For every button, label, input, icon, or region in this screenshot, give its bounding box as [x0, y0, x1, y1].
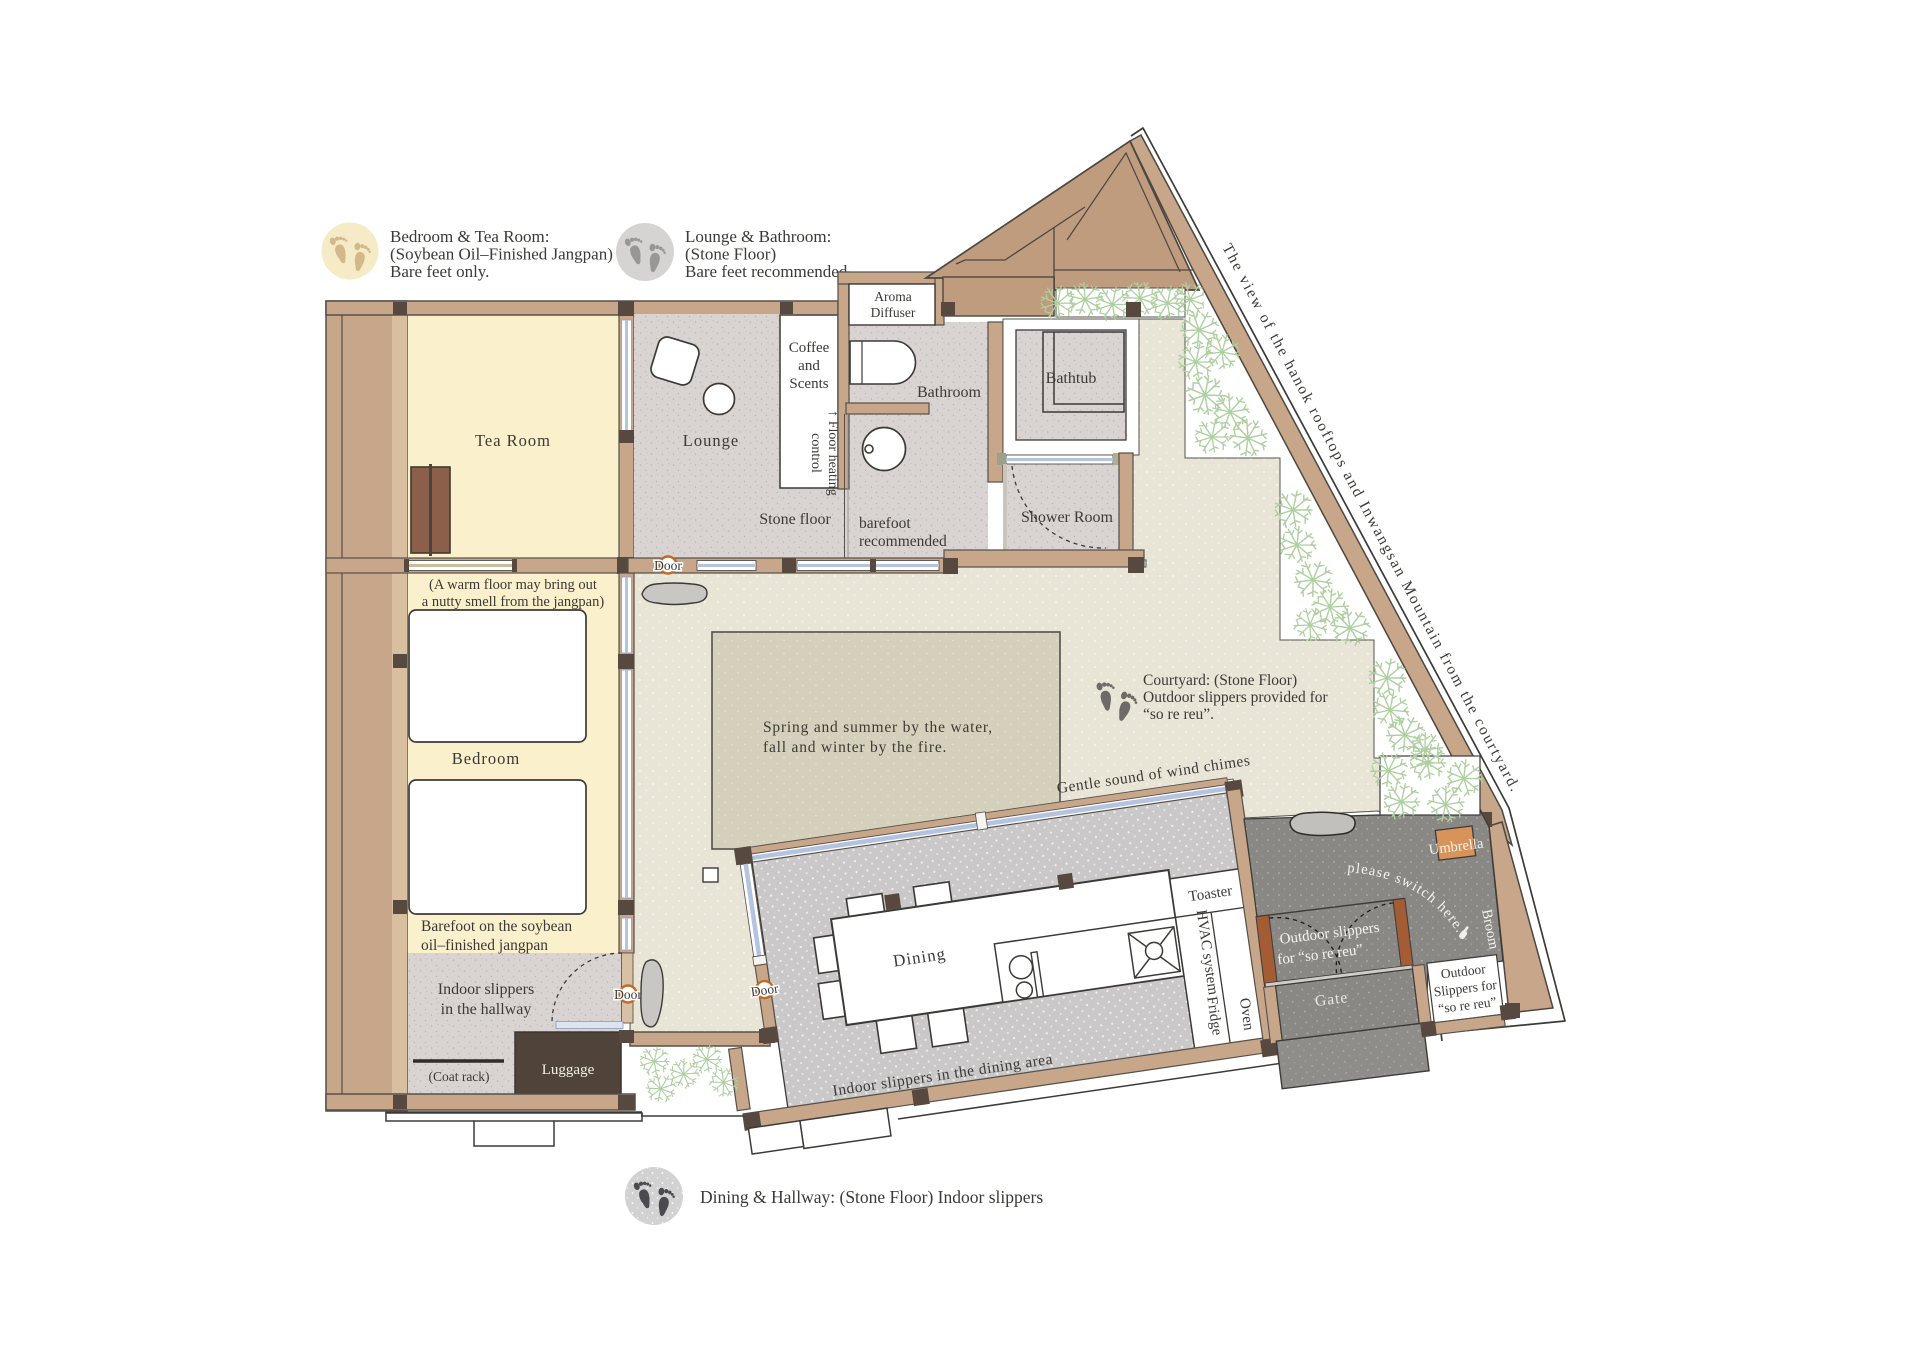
svg-text:Barefoot on the soybean: Barefoot on the soybean [421, 918, 572, 935]
svg-text:Tea Room: Tea Room [475, 431, 551, 450]
svg-text:and: and [798, 358, 820, 374]
svg-text:Bathroom: Bathroom [917, 384, 982, 401]
svg-text:Bare feet only.: Bare feet only. [390, 262, 489, 281]
svg-text:Stone floor: Stone floor [759, 511, 831, 528]
svg-text:Luggage: Luggage [542, 1062, 595, 1078]
svg-text:barefoot: barefoot [859, 515, 911, 532]
svg-text:oil–finished jangpan: oil–finished jangpan [421, 937, 548, 954]
svg-text:Lounge & Bathroom:: Lounge & Bathroom: [685, 227, 831, 246]
svg-text:Spring and summer by the water: Spring and summer by the water, [763, 719, 993, 736]
svg-text:Indoor slippers: Indoor slippers [438, 981, 534, 998]
svg-text:Door: Door [614, 987, 642, 1002]
svg-text:Diffuser: Diffuser [871, 305, 916, 320]
svg-text:Bathtub: Bathtub [1046, 370, 1097, 387]
svg-text:Door: Door [654, 558, 682, 573]
svg-text:Outdoor slippers provided for: Outdoor slippers provided for [1143, 689, 1329, 706]
svg-text:“so re reu”.: “so re reu”. [1143, 706, 1214, 723]
svg-text:Bare feet recommended.: Bare feet recommended. [685, 262, 852, 281]
svg-text:Bedroom: Bedroom [452, 749, 520, 768]
svg-text:Bedroom & Tea Room:: Bedroom & Tea Room: [390, 227, 550, 246]
svg-text:recommended: recommended [859, 533, 947, 550]
svg-text:Scents: Scents [789, 376, 828, 392]
svg-text:Coffee: Coffee [789, 340, 830, 356]
svg-text:Dining & Hallway: (Stone Floor: Dining & Hallway: (Stone Floor) Indoor s… [700, 1187, 1043, 1207]
svg-text:(Coat rack): (Coat rack) [428, 1069, 489, 1084]
svg-text:in the hallway: in the hallway [441, 1001, 532, 1018]
svg-text:Shower Room: Shower Room [1021, 509, 1114, 526]
svg-text:Aroma: Aroma [874, 289, 912, 304]
svg-text:(Soybean Oil–Finished Jangpan): (Soybean Oil–Finished Jangpan) [390, 245, 613, 264]
svg-text:Lounge: Lounge [683, 431, 739, 450]
svg-text:Courtyard: (Stone Floor): Courtyard: (Stone Floor) [1143, 672, 1297, 689]
svg-text:a nutty smell from the jangpan: a nutty smell from the jangpan) [422, 594, 605, 610]
svg-text:(Stone Floor): (Stone Floor) [685, 245, 776, 264]
svg-text:fall and winter by the fire.: fall and winter by the fire. [763, 739, 947, 756]
svg-text:(A warm floor may bring out: (A warm floor may bring out [429, 577, 597, 593]
